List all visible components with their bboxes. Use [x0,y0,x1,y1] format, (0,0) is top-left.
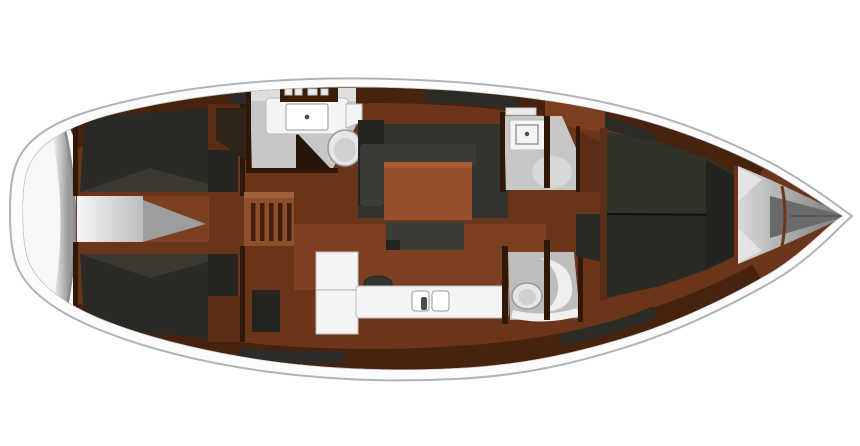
fwd-head-shower-pan [532,156,572,188]
cabinet-item-2 [295,89,302,95]
toilet-seat [334,138,356,162]
stair-step-2 [260,203,265,241]
aft-bottom-headboard [208,296,242,342]
sofa-bench-end [386,240,400,250]
stairs-top-lip [244,192,294,198]
stair-step-5 [287,203,292,241]
walkway-floor [77,196,143,242]
galley-sink-right [432,291,449,311]
shower-toilet-seat [518,289,536,305]
cabinet-item-3 [308,89,317,95]
fwd-sink-drain [525,132,529,136]
galley-faucet [421,297,427,310]
stern-walkway [77,196,209,242]
boat-floor-plan [0,0,860,446]
shower-wall-left [502,246,508,324]
sofa-left-arm [360,144,384,206]
fwd-foot-locker [576,214,602,262]
fwd-bulkhead-bottom [544,240,550,320]
head-wall-left [246,84,251,172]
aft-top-locker [208,150,238,192]
stair-step-4 [278,203,283,241]
salon-table-edge [384,162,472,168]
v-berth-frame [600,128,607,300]
fwd-head-wall-left [500,112,505,192]
aft-bottom-locker [208,254,238,296]
sink-drain [305,115,310,120]
head-bottom [502,246,583,324]
head-aft-top [246,84,362,173]
fwd-head-wall-right [576,126,580,192]
cabinet-item-4 [321,89,328,95]
galley-lower-cabinet [252,290,280,332]
companionway [244,192,294,246]
stair-step-1 [251,203,256,241]
fwd-bulkhead-top [544,116,550,188]
floor-plan-svg [0,0,860,446]
shower-wall-right [578,250,583,322]
v-berth-bow-shade [706,160,736,268]
head-fwd-top [500,96,605,192]
fridge [316,252,358,334]
bottom-locker-band-2 [240,353,345,358]
cabinet-item-1 [285,89,292,95]
deck-hatch [506,108,536,115]
salon-table [384,162,472,220]
aft-bulkhead-bottom [73,242,78,342]
stair-step-3 [269,203,274,241]
head-wall-bottom [246,168,338,173]
mid-bulkhead-bottom [240,246,245,342]
